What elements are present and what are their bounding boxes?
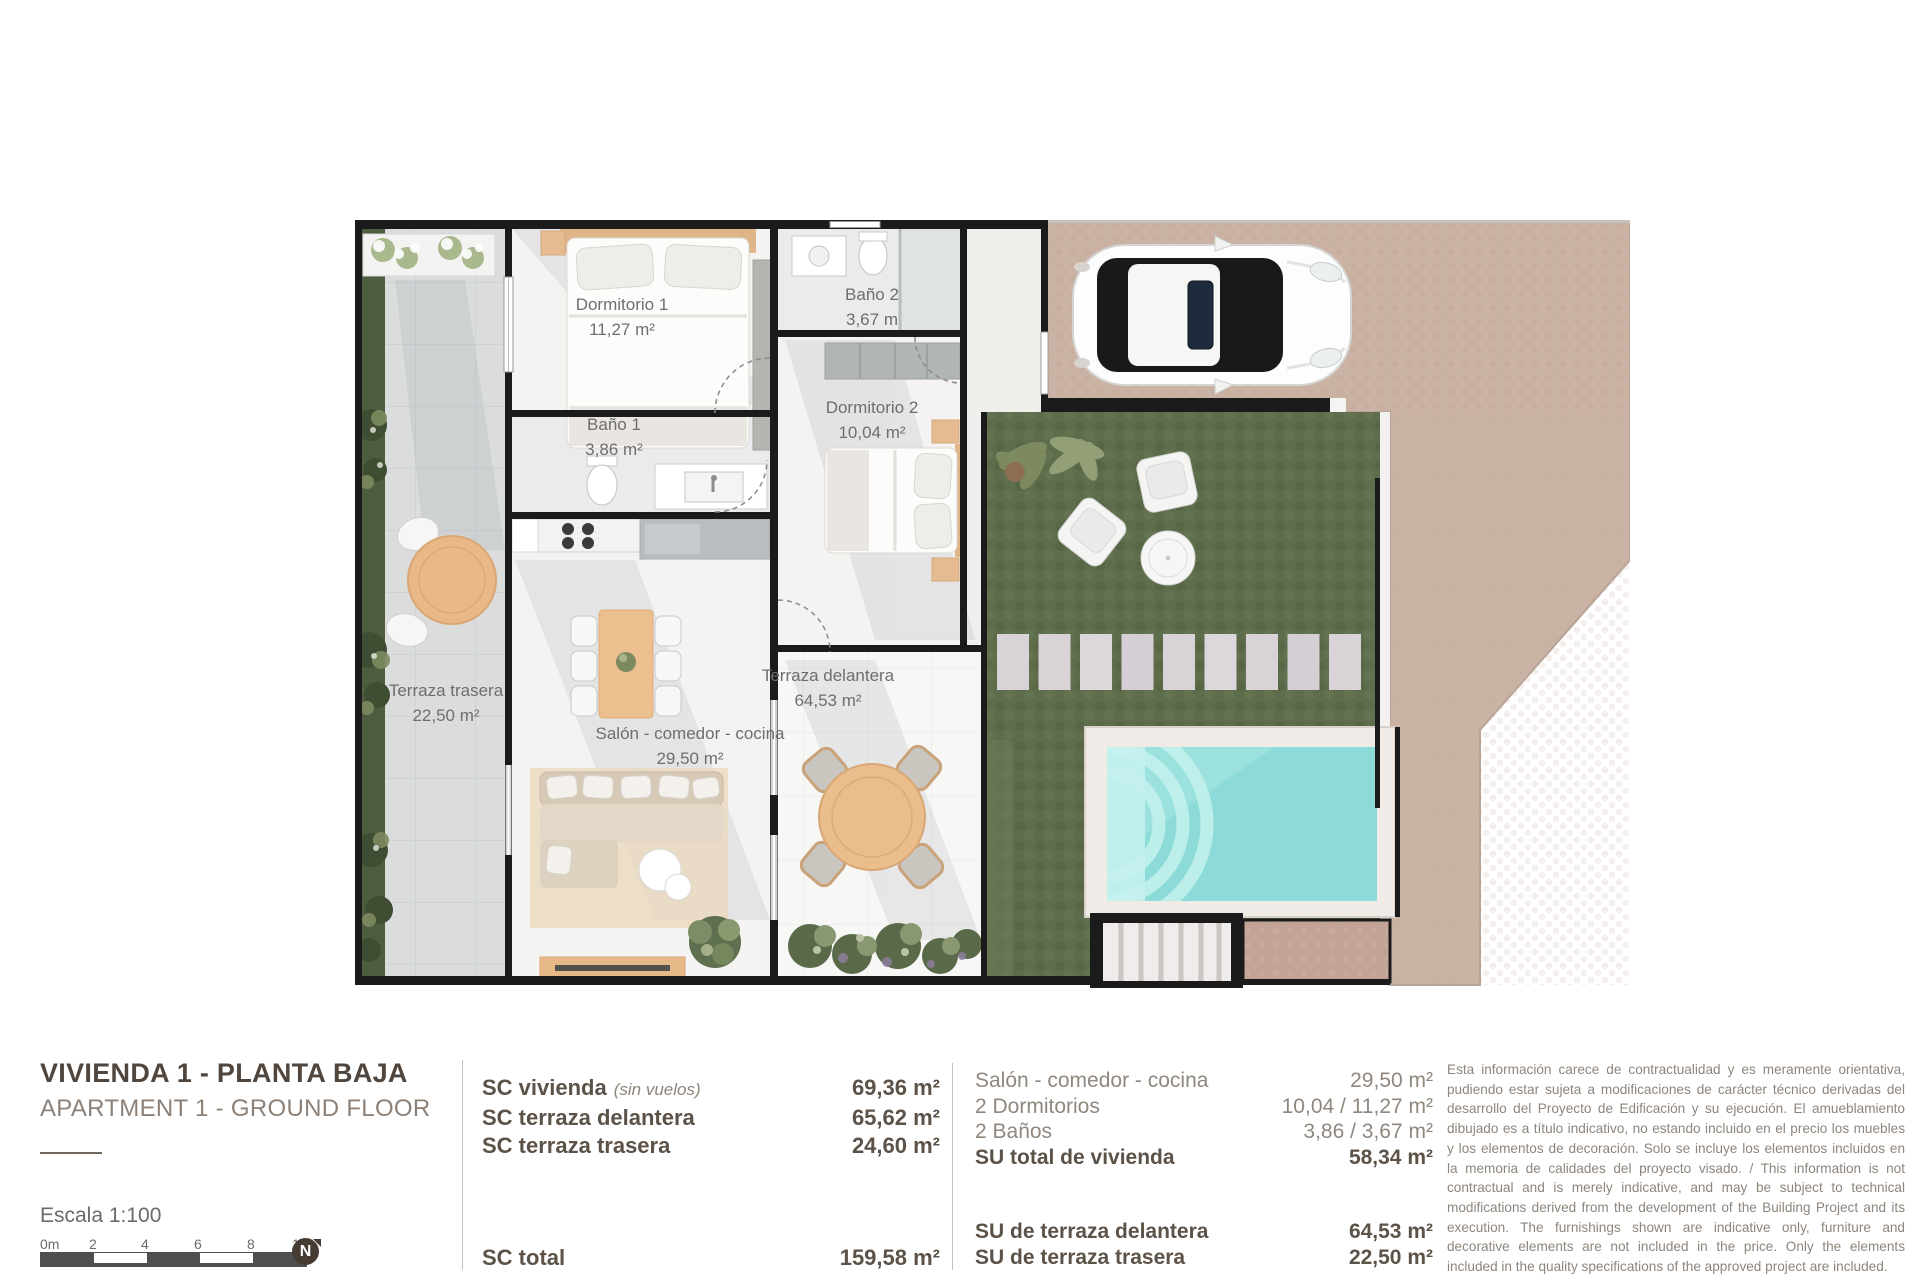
divider-2 [952,1063,953,1270]
sc-total-row: SC total 159,58 m² [482,1244,940,1272]
north-arrow-icon: N [292,1238,319,1265]
room-label-dormitorio-1: Dormitorio 111,27 m² [576,292,669,342]
room-label-terraza-delantera: Terraza delantera64,53 m² [762,663,894,713]
title-block: VIVIENDA 1 - PLANTA BAJA APARTMENT 1 - G… [40,1058,440,1123]
scale-tick: 2 [89,1236,97,1252]
table-row: SC terraza delantera 65,62 m² [482,1104,940,1132]
su-surface-table: Salón - comedor - cocina 29,50 m² 2 Dorm… [975,1068,1433,1270]
car-top-view [1073,236,1351,394]
room-label-terraza-trasera: Terraza trasera22,50 m² [389,678,503,728]
room-label-dormitorio-2: Dormitorio 210,04 m² [826,395,919,445]
pool-stairs [1090,913,1243,988]
front-terrace-table [798,743,947,892]
table-row: SC vivienda(sin vuelos) 69,36 m² [482,1074,940,1104]
floor-plan-drawing [355,220,1630,990]
stepping-stones [997,634,1361,690]
page-title: VIVIENDA 1 - PLANTA BAJA [40,1058,440,1089]
scale-tick: 4 [141,1236,149,1252]
title-dash [40,1152,102,1154]
north-letter: N [300,1243,312,1261]
scale-tick: 8 [247,1236,255,1252]
scale-tick: 6 [194,1236,202,1252]
cobble-patio [1243,920,1390,982]
planter-box [363,234,495,276]
scale-label: Escala 1:100 [40,1204,161,1228]
table-row: Salón - comedor - cocina 29,50 m² [975,1068,1433,1094]
table-row: 2 Dormitorios 10,04 / 11,27 m² [975,1094,1433,1120]
page: Dormitorio 111,27 m² Baño 23,67 m Baño 1… [0,0,1920,1280]
floor-plan: Dormitorio 111,27 m² Baño 23,67 m Baño 1… [355,220,1630,990]
table-row: SC terraza trasera 24,60 m² [482,1132,940,1160]
su-total-row: SU total de vivienda 58,34 m² [975,1145,1433,1171]
room-label-salon: Salón - comedor - cocina29,50 m² [596,721,785,771]
divider-1 [462,1060,463,1270]
entry-corridor [967,229,1041,412]
table-row: 2 Baños 3,86 / 3,67 m² [975,1119,1433,1145]
sc-surface-table: SC vivienda(sin vuelos) 69,36 m² SC terr… [482,1074,940,1272]
table-row: SU de terraza trasera 22,50 m² [975,1245,1433,1271]
bed-dormitorio-2 [825,343,963,581]
room-label-bano-2: Baño 23,67 m [845,282,899,332]
room-label-bano-1: Baño 13,86 m² [585,412,643,462]
row-note: (sin vuelos) [614,1080,701,1099]
scale-bar: 0m 2 4 6 8 10 [40,1236,310,1266]
scale-bar-base [40,1263,307,1267]
scale-tick: 0m [40,1236,59,1252]
wall-cap [1330,398,1346,412]
legal-disclaimer: Esta información carece de contractualid… [1447,1060,1905,1277]
dining-table [571,610,681,718]
page-subtitle: APARTMENT 1 - GROUND FLOOR [40,1095,440,1123]
table-row: SU de terraza delantera 64,53 m² [975,1219,1433,1245]
